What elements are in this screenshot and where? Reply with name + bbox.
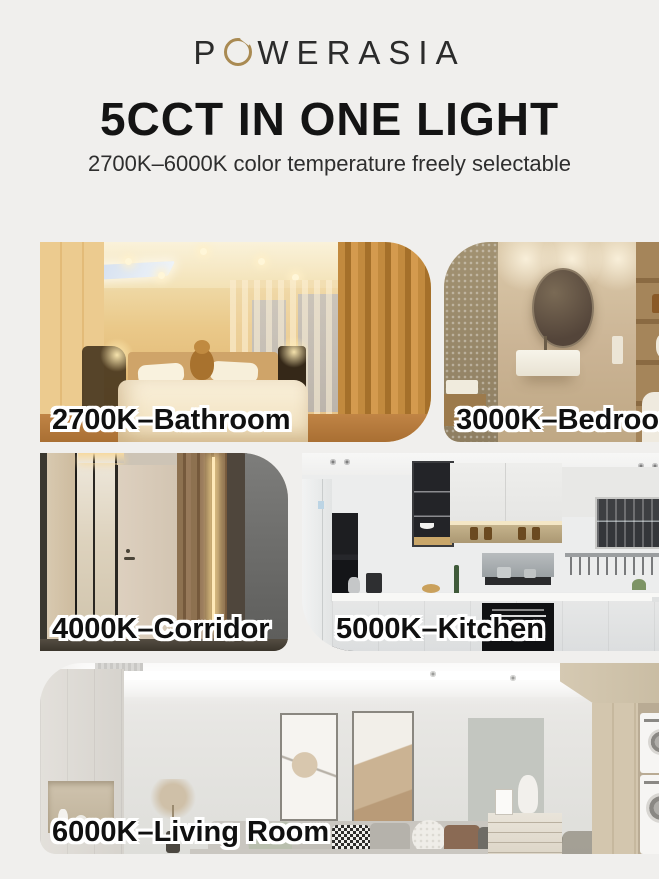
wall-edge xyxy=(40,453,47,651)
lit-shelf-niche xyxy=(450,521,562,543)
page-subtitle: 2700K–6000K color temperature freely sel… xyxy=(0,150,659,179)
jar xyxy=(470,527,478,540)
towel-stack xyxy=(446,380,478,394)
countertop xyxy=(332,593,659,601)
lamp-glow xyxy=(278,336,310,368)
label-3000k: 3000K–Bedroom xyxy=(456,404,659,437)
label-5000k: 5000K–Kitchen xyxy=(336,613,544,646)
label-6000k: 6000K–Living Room xyxy=(52,816,329,849)
sink xyxy=(516,350,580,376)
label-2700k: 2700K–Bathroom xyxy=(52,404,291,437)
cooktop xyxy=(485,577,551,585)
pot xyxy=(497,567,511,578)
hanging-utensils xyxy=(570,557,656,575)
bottle xyxy=(454,565,459,593)
downlight xyxy=(510,675,516,681)
range-hood xyxy=(482,553,554,577)
bottle xyxy=(652,294,659,313)
photo-tile-3000k: 3000K–Bedroom xyxy=(444,242,659,442)
cove-light xyxy=(78,453,124,463)
photo-tile-2700k: 2700K–Bathroom xyxy=(40,242,431,442)
downlight xyxy=(158,272,165,279)
jar xyxy=(532,527,540,540)
product-infographic: PWERASIA 5CCT IN ONE LIGHT 2700K–6000K c… xyxy=(0,0,659,879)
fridge-magnet xyxy=(318,501,324,509)
jar xyxy=(518,527,526,540)
photo-tile-4000k: 4000K–Corridor xyxy=(40,453,288,651)
downlight xyxy=(430,671,436,677)
photo-tile-5000k: 5000K–Kitchen xyxy=(302,453,659,651)
fridge xyxy=(302,479,332,651)
curtain xyxy=(338,242,431,438)
wall-art xyxy=(280,713,338,821)
door-handle xyxy=(124,557,135,560)
photo-frame xyxy=(495,789,513,815)
brand-letter-p: P xyxy=(193,34,223,71)
glass-display-cabinet xyxy=(412,461,454,547)
sculpture xyxy=(518,775,538,813)
brand-rest: WERASIA xyxy=(257,34,465,71)
washer-controls xyxy=(644,781,659,784)
downlight xyxy=(330,459,336,465)
bread xyxy=(422,584,440,593)
dresser xyxy=(488,813,562,854)
dryer-controls xyxy=(644,719,659,722)
teddy-bear xyxy=(190,348,214,380)
label-4000k: 4000K–Corridor xyxy=(52,613,270,646)
sink xyxy=(652,597,659,602)
jar xyxy=(484,527,492,540)
photo-tile-6000k: 6000K–Living Room xyxy=(40,663,659,854)
downlight xyxy=(258,258,265,265)
led-strip xyxy=(212,457,215,627)
door-lock xyxy=(126,549,130,553)
downlight xyxy=(200,248,207,255)
glass-shelf-cabinet xyxy=(595,497,659,549)
wood-wardrobe xyxy=(592,703,638,854)
brand-logo: PWERASIA xyxy=(0,36,659,69)
hand-towel xyxy=(612,336,623,364)
plant xyxy=(632,579,646,590)
brand-o-ring-icon xyxy=(224,38,252,66)
wall-art xyxy=(352,711,414,823)
pot xyxy=(524,569,536,578)
kettle xyxy=(348,577,360,593)
oval-mirror xyxy=(532,268,594,348)
cove-light xyxy=(82,671,582,680)
upper-cabinets xyxy=(450,463,562,521)
bowl xyxy=(420,523,434,529)
downlight xyxy=(344,459,350,465)
coffee-machine xyxy=(366,573,382,593)
downlight xyxy=(125,258,132,265)
page-title: 5CCT IN ONE LIGHT xyxy=(0,94,659,145)
